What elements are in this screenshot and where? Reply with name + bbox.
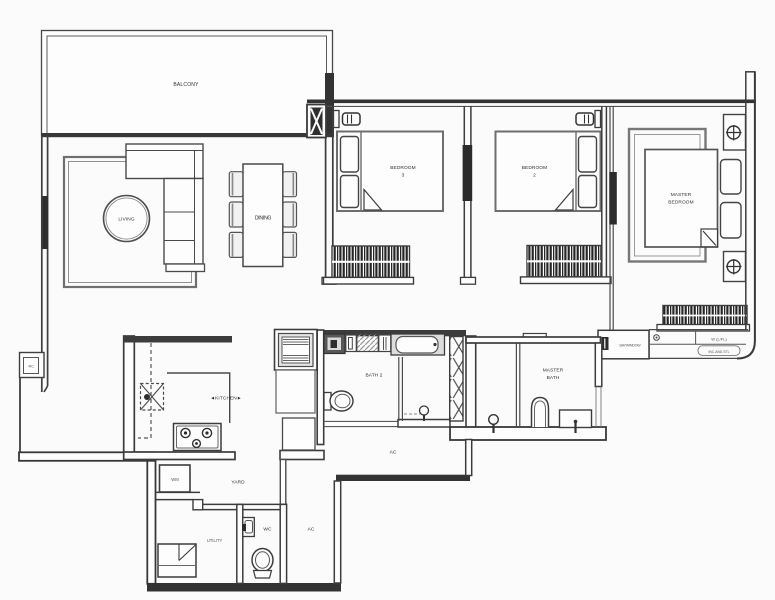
svg-text:2: 2 bbox=[533, 173, 536, 179]
svg-text:BALCONY: BALCONY bbox=[173, 82, 199, 88]
svg-text:MASTER: MASTER bbox=[671, 192, 692, 198]
svg-text:YARD: YARD bbox=[231, 480, 245, 486]
svg-text:BEDROOM: BEDROOM bbox=[522, 165, 548, 171]
svg-text:BATH: BATH bbox=[547, 375, 560, 381]
svg-text:BAYWINDOW: BAYWINDOW bbox=[620, 344, 642, 348]
svg-text:UTILITY: UTILITY bbox=[207, 538, 223, 543]
svg-text:AC: AC bbox=[390, 450, 397, 456]
svg-text:WM: WM bbox=[171, 477, 179, 482]
svg-text:W (L/FL): W (L/FL) bbox=[711, 337, 727, 342]
svg-text:◄KITCHEN►: ◄KITCHEN► bbox=[210, 396, 241, 402]
svg-text:BEDROOM: BEDROOM bbox=[390, 165, 416, 171]
svg-text:RC: RC bbox=[29, 365, 35, 369]
svg-text:WC: WC bbox=[263, 527, 272, 533]
svg-text:BATH 2: BATH 2 bbox=[365, 373, 382, 379]
svg-text:AC: AC bbox=[308, 527, 315, 533]
svg-text:3: 3 bbox=[402, 173, 405, 179]
svg-text:LIVING: LIVING bbox=[118, 217, 134, 223]
svg-text:INC.AND.STL: INC.AND.STL bbox=[708, 350, 729, 354]
svg-text:BEDROOM: BEDROOM bbox=[668, 200, 694, 206]
svg-text:DINING: DINING bbox=[255, 216, 272, 222]
svg-text:MASTER: MASTER bbox=[543, 368, 564, 374]
